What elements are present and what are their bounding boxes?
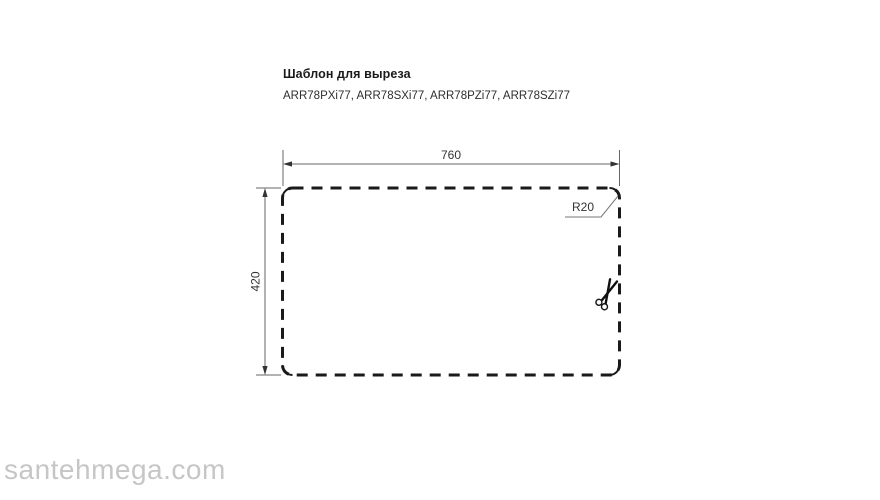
arrow-left-icon xyxy=(283,161,292,166)
height-dimension-label: 420 xyxy=(249,271,263,291)
page: Шаблон для выреза ARR78PXi77, ARR78SXi77… xyxy=(0,0,880,500)
arrow-right-icon xyxy=(611,161,620,166)
arrow-down-icon xyxy=(262,366,267,375)
cutout-template-drawing: 760 420 R20 xyxy=(0,0,880,500)
arrow-up-icon xyxy=(262,188,267,197)
width-dimension-label: 760 xyxy=(441,148,461,162)
corner-arcs xyxy=(283,188,620,375)
scissors-icon xyxy=(595,277,618,311)
cutout-outline xyxy=(283,188,620,375)
corner-radius-label: R20 xyxy=(572,200,594,214)
watermark: santehmega.com xyxy=(4,454,226,486)
